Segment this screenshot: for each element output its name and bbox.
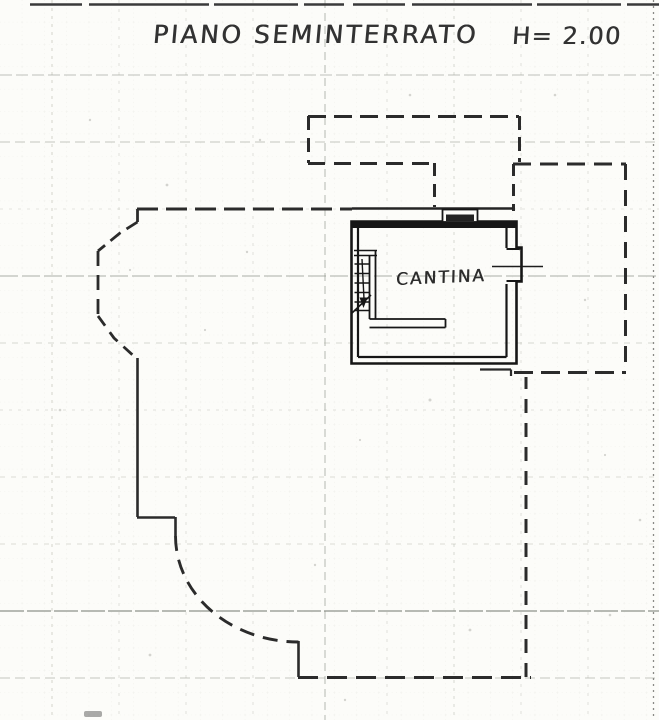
room-label-cantina: CANTINA: [396, 266, 486, 290]
floor-plan-drawing: [0, 0, 659, 720]
fine-grid-texture: [0, 0, 659, 720]
scanned-floor-plan-sheet: PIANO SEMINTERRATO H= 2.00 CANTINA: [0, 0, 659, 720]
scan-smudge: [84, 711, 102, 717]
height-annotation: H= 2.00: [511, 22, 623, 50]
plan-title: PIANO SEMINTERRATO: [152, 20, 480, 49]
top-window: [443, 210, 478, 223]
